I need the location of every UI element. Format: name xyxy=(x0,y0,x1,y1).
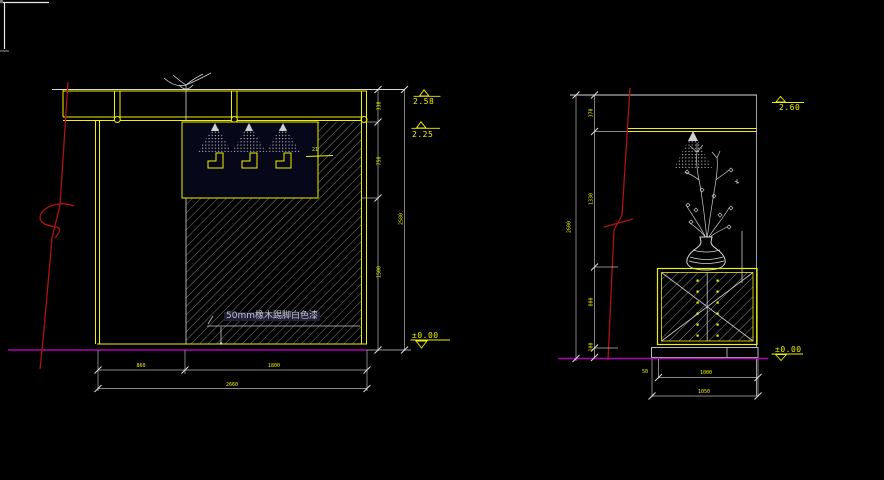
left-floor-lines xyxy=(8,344,411,350)
skirting-note-text: 50mm橡木踢脚白色漆 xyxy=(224,312,320,321)
spotlight-beam-icon xyxy=(198,123,300,152)
right-ceiling-lines xyxy=(570,95,757,132)
dim-text: 1050 xyxy=(698,390,710,395)
level-marker-2.58 xyxy=(414,90,441,97)
curtain-finial-icon xyxy=(164,73,211,121)
dim-text: 1330 xyxy=(590,193,595,205)
level-text-floor-right: ±0.00 xyxy=(775,346,802,354)
level-text-floor-left: ±0.00 xyxy=(412,332,439,340)
flower-icon xyxy=(685,168,733,229)
dim-text: 2600 xyxy=(568,221,573,233)
level-text-upper-right: 2.60 xyxy=(779,104,800,112)
cad-drawing-layer xyxy=(0,0,884,480)
viewport-corner xyxy=(0,0,49,51)
dim-text: 860 xyxy=(136,364,145,369)
level-marker-0.00-right xyxy=(772,354,804,361)
level-text-upper-left: 2.58 xyxy=(413,98,434,106)
dim-text: 750 xyxy=(378,156,383,165)
left-ceiling-band xyxy=(52,89,405,123)
level-marker-0.00-left xyxy=(411,340,451,348)
dim-text: 50 xyxy=(642,370,648,375)
dim-text: 1800 xyxy=(268,364,280,369)
dim-text: 330 xyxy=(378,101,383,110)
dim-text: 2580 xyxy=(400,213,405,225)
callout-text: 21 xyxy=(312,148,318,153)
dim-text: 2660 xyxy=(226,383,238,388)
level-marker-2.25 xyxy=(412,122,441,129)
cabinet-plinth xyxy=(652,348,759,358)
vase-icon xyxy=(687,237,725,270)
dim-text: 1000 xyxy=(700,371,712,376)
dim-text: 1500 xyxy=(378,266,383,278)
sparkle-icon xyxy=(735,179,739,184)
dim-text: 100 xyxy=(590,342,595,351)
level-text-mid-left: 2.25 xyxy=(412,131,433,139)
cad-canvas[interactable]: 2.58 2.25 ±0.00 50mm橡木踢脚白色漆 21 330 750 1… xyxy=(0,0,884,480)
dim-text: 800 xyxy=(590,297,595,306)
level-marker-2.60 xyxy=(772,97,804,103)
spotlight-beam-icon xyxy=(674,131,712,168)
spotlight-niche-panel xyxy=(182,122,333,198)
left-break-line xyxy=(40,82,74,369)
dim-text: 370 xyxy=(590,108,595,117)
